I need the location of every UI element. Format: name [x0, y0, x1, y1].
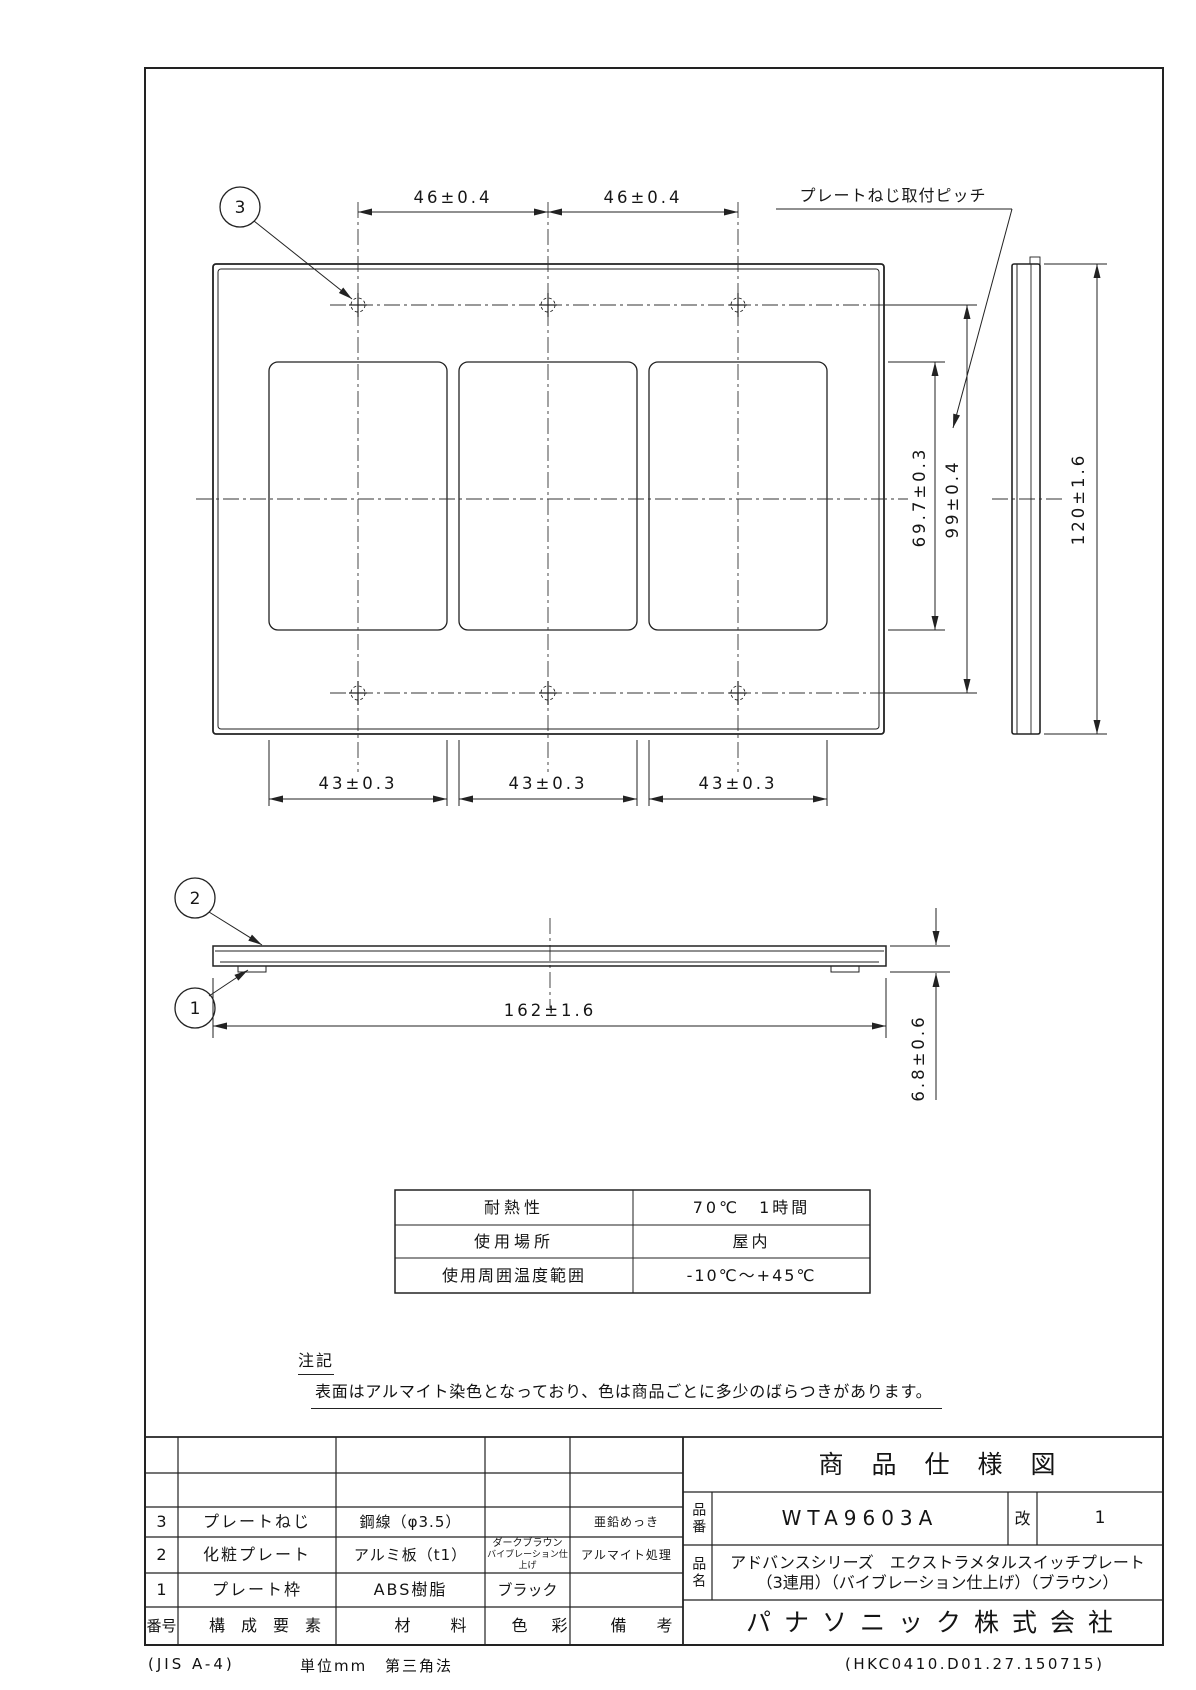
screw-pitch-label: プレートねじ取付ピッチ: [799, 186, 986, 205]
parts-row3-component: プレートねじ: [178, 1507, 336, 1537]
parts-row3-no: 3: [145, 1507, 178, 1537]
spec-row-place-value: 屋内: [633, 1225, 870, 1258]
parts-row2-color-line1: ダークブラウン: [493, 1538, 563, 1551]
dim-120: 120±1.6: [1069, 453, 1088, 546]
product-name: アドバンスシリーズ エクストラメタルスイッチプレート （3連用）（バイブレーショ…: [712, 1545, 1163, 1600]
footer-code: (HKC0410.D01.27.150715): [845, 1655, 1104, 1673]
part-number-label: 品番: [683, 1492, 712, 1545]
note-text: 表面はアルマイト染色となっており、色は商品ごとに多少のばらつきがあります。: [311, 1378, 942, 1409]
parts-row3-material: 鋼線（φ3.5）: [336, 1507, 485, 1537]
side-view: [1012, 257, 1040, 734]
balloon-3-number: 3: [235, 198, 246, 218]
balloon-2: 2: [175, 878, 262, 945]
parts-row1-no: 1: [145, 1573, 178, 1607]
spec-row-heat-value: 70℃ 1時間: [633, 1190, 870, 1225]
balloon-2-number: 2: [190, 889, 201, 909]
spec-row-place-label: 使用場所: [395, 1225, 633, 1258]
parts-header-component: 構成要素: [178, 1607, 352, 1645]
dim-6-8: 6.8±0.6: [909, 1014, 928, 1101]
parts-row2-no: 2: [145, 1537, 178, 1573]
spec-drawing-page: 46±0.4 46±0.4 プレートねじ取付ピッチ 3 69.7±0.3 99±…: [0, 0, 1196, 1690]
product-name-label-text: 品名: [689, 1556, 707, 1590]
parts-row2-component: 化粧プレート: [178, 1537, 336, 1573]
product-name-label: 品名: [683, 1545, 712, 1600]
parts-row1-material: ABS樹脂: [336, 1573, 485, 1607]
profile-view: [213, 946, 886, 972]
parts-row3-color: [485, 1507, 570, 1537]
product-name-line1: アドバンスシリーズ エクストラメタルスイッチプレート: [730, 1553, 1145, 1573]
dim-43-1: 43±0.3: [318, 774, 397, 793]
footer-unit: 単位mm: [300, 1655, 367, 1676]
parts-row2-material: アルミ板（t1）: [336, 1537, 485, 1573]
screw-pitch-callout: プレートねじ取付ピッチ: [776, 186, 1012, 428]
product-name-line2: （3連用）（バイブレーション仕上げ）（ブラウン）: [757, 1573, 1119, 1593]
parts-header-no: 番号: [145, 1607, 178, 1645]
balloon-1-number: 1: [190, 999, 201, 1019]
parts-row1-color: ブラック: [485, 1573, 570, 1607]
dim-right-side: [884, 305, 977, 693]
parts-header-remarks: 備考: [570, 1607, 713, 1645]
parts-row2-remarks: アルマイト処理: [570, 1537, 683, 1573]
dim-46-left: 46±0.4: [413, 188, 492, 207]
footer-projection: 第三角法: [385, 1655, 453, 1676]
footer-standard: (JIS A-4): [148, 1655, 235, 1673]
note-label: 注記: [298, 1347, 334, 1375]
parts-row1-component: プレート枠: [178, 1573, 336, 1607]
part-number-value: WTA9603A: [712, 1492, 1008, 1545]
balloon-3: 3: [220, 187, 352, 299]
revision-value: 1: [1037, 1492, 1163, 1545]
dim-screw-pitch-vertical: 99±0.4: [943, 459, 962, 538]
title-block-title: 商品仕様図: [683, 1437, 1191, 1492]
parts-row3-remarks: 亜鉛めっき: [570, 1507, 683, 1537]
parts-row2-color-line2: バイブレーション仕上げ: [485, 1550, 570, 1573]
part-number-label-text: 品番: [689, 1502, 707, 1536]
dim-43-2: 43±0.3: [508, 774, 587, 793]
dim-opening-height: 69.7±0.3: [910, 447, 929, 548]
parts-row1-remarks: [570, 1573, 683, 1607]
spec-row-heat-label: 耐熱性: [395, 1190, 633, 1225]
balloon-1: 1: [175, 970, 248, 1028]
revision-label: 改: [1008, 1492, 1037, 1545]
centerlines: [196, 202, 1062, 1008]
dim-162: 162±1.6: [504, 1001, 597, 1020]
spec-row-temp-label: 使用周囲温度範囲: [395, 1258, 633, 1293]
spec-row-temp-value: -10℃～+45℃: [633, 1258, 870, 1293]
dim-43-3: 43±0.3: [698, 774, 777, 793]
dim-46-right: 46±0.4: [603, 188, 682, 207]
parts-row2-color: ダークブラウン バイブレーション仕上げ: [485, 1537, 570, 1573]
company-name: パナソニック株式会社: [683, 1600, 1176, 1645]
